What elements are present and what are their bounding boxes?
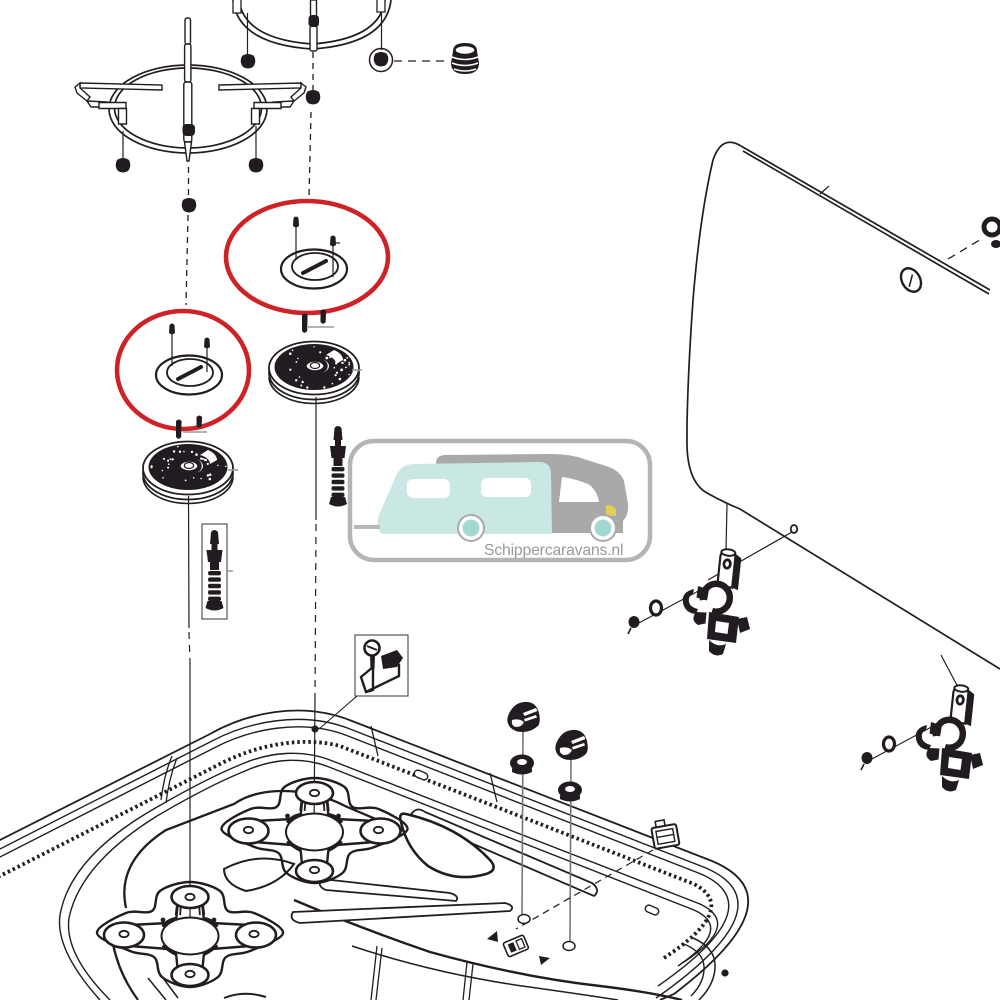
svg-text:Schippercaravans.nl: Schippercaravans.nl xyxy=(484,542,623,559)
